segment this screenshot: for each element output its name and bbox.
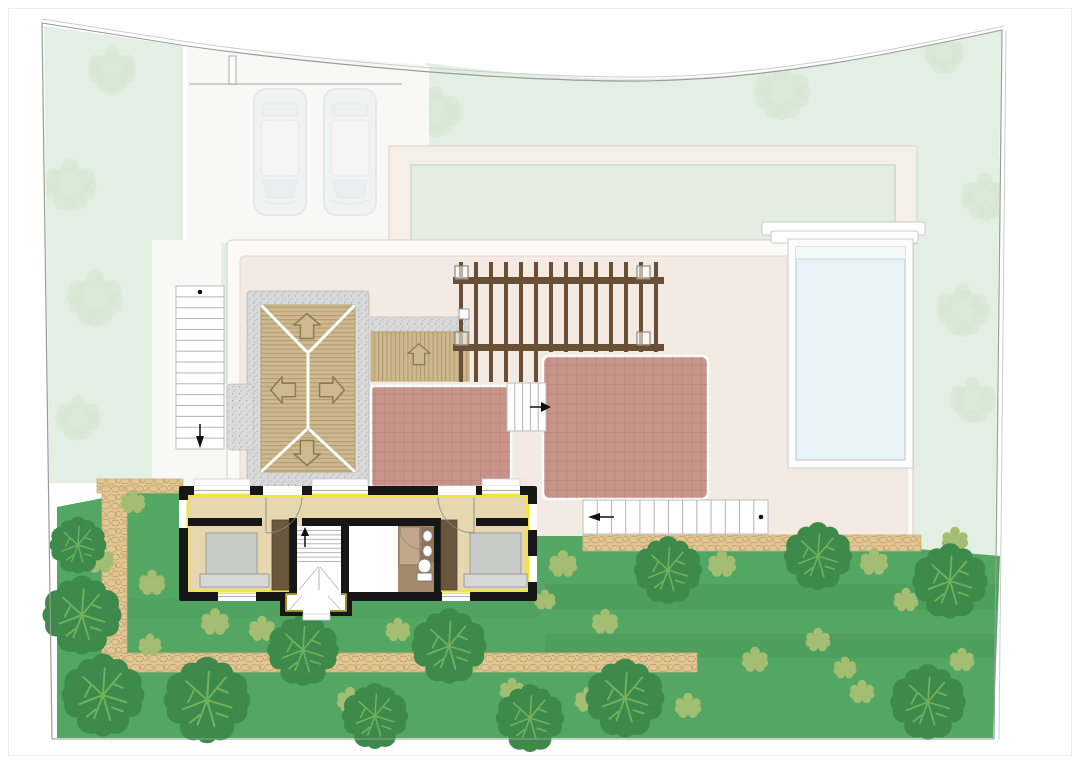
- stone-path-east: [583, 535, 921, 551]
- site-plan-canvas: [0, 0, 1080, 764]
- vestibule-step: [303, 614, 330, 620]
- pool-entry-step: [796, 247, 905, 259]
- window: [312, 486, 368, 495]
- main-roof: [247, 291, 369, 486]
- pergola-beam: [453, 277, 664, 284]
- pergola-corner-detail: [459, 309, 469, 319]
- pergola-slat: [609, 262, 613, 352]
- window: [179, 500, 188, 528]
- pergola-slat: [549, 262, 553, 352]
- window: [528, 504, 537, 530]
- window: [442, 592, 470, 601]
- sink: [423, 531, 432, 542]
- windows-north: [194, 486, 520, 495]
- tiled-terrace-east: [543, 356, 708, 499]
- window: [482, 486, 520, 495]
- window: [528, 556, 537, 582]
- floor-plan: [179, 486, 537, 620]
- corridor: [349, 526, 398, 592]
- pergola-slat: [594, 262, 598, 352]
- toilet-bowl: [418, 559, 431, 573]
- pool-water: [796, 247, 905, 460]
- window: [194, 486, 250, 495]
- pergola-slat: [579, 262, 583, 352]
- tiled-terrace-west: [371, 386, 511, 487]
- pergola-slat: [564, 262, 568, 352]
- bed-east: [464, 533, 527, 587]
- pergola-beam: [453, 344, 664, 351]
- gate-post: [229, 56, 236, 84]
- window: [218, 592, 256, 601]
- door-opening: [263, 486, 302, 495]
- bathroom: [398, 526, 434, 592]
- sink: [423, 546, 432, 557]
- toilet-tank: [417, 573, 432, 581]
- pergola-slat: [654, 262, 658, 352]
- car: [250, 89, 310, 215]
- site-plan-drawing: [0, 0, 1080, 764]
- car: [320, 89, 380, 215]
- wardrobe-east: [441, 520, 457, 590]
- pergola-slat: [624, 262, 628, 352]
- door-opening: [438, 486, 476, 495]
